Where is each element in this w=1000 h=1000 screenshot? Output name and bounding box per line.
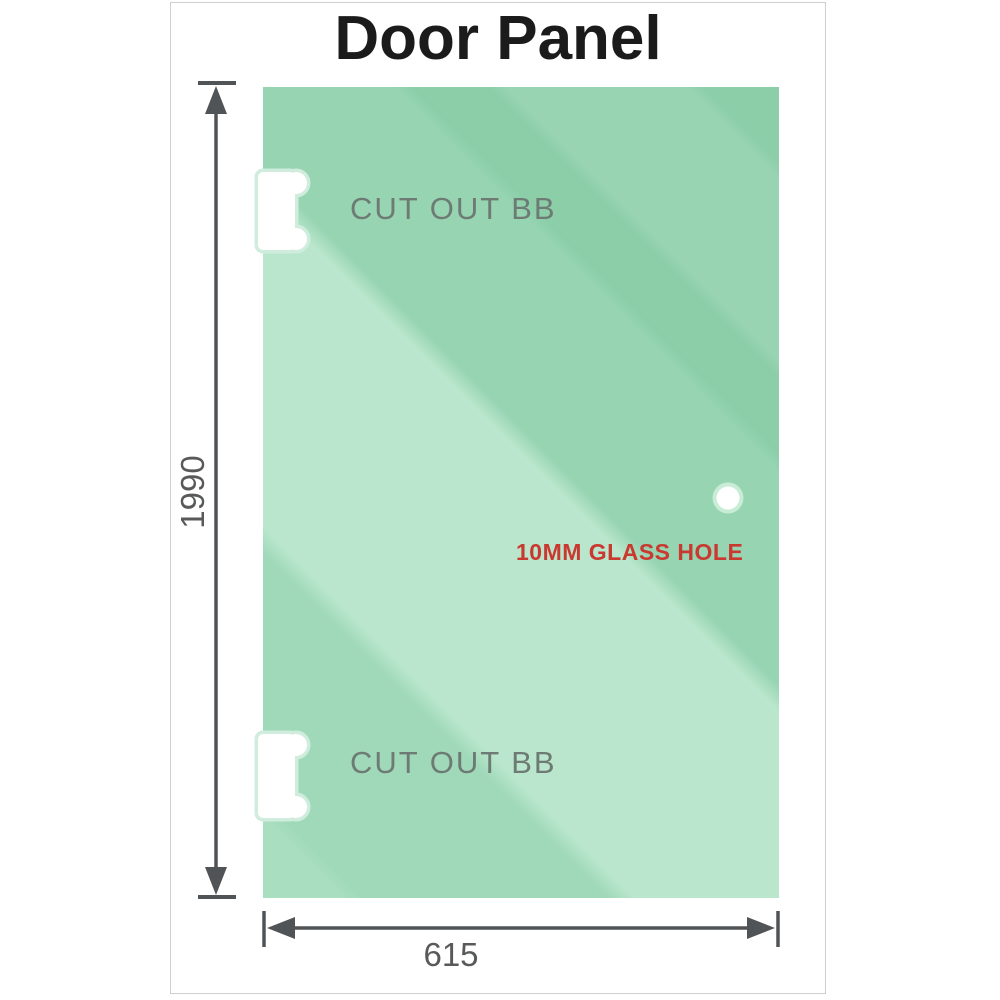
glass-hole-label: 10MM GLASS HOLE [516, 539, 743, 566]
cutout-bottom-label: CUT OUT BB [350, 745, 557, 781]
diagram-stage: Door Panel [0, 0, 1000, 1000]
cutout-top-label: CUT OUT BB [350, 191, 557, 227]
width-dimension-label: 615 [391, 937, 511, 973]
height-dimension-label: 1990 [173, 422, 213, 562]
diagram-title: Door Panel [170, 8, 826, 70]
